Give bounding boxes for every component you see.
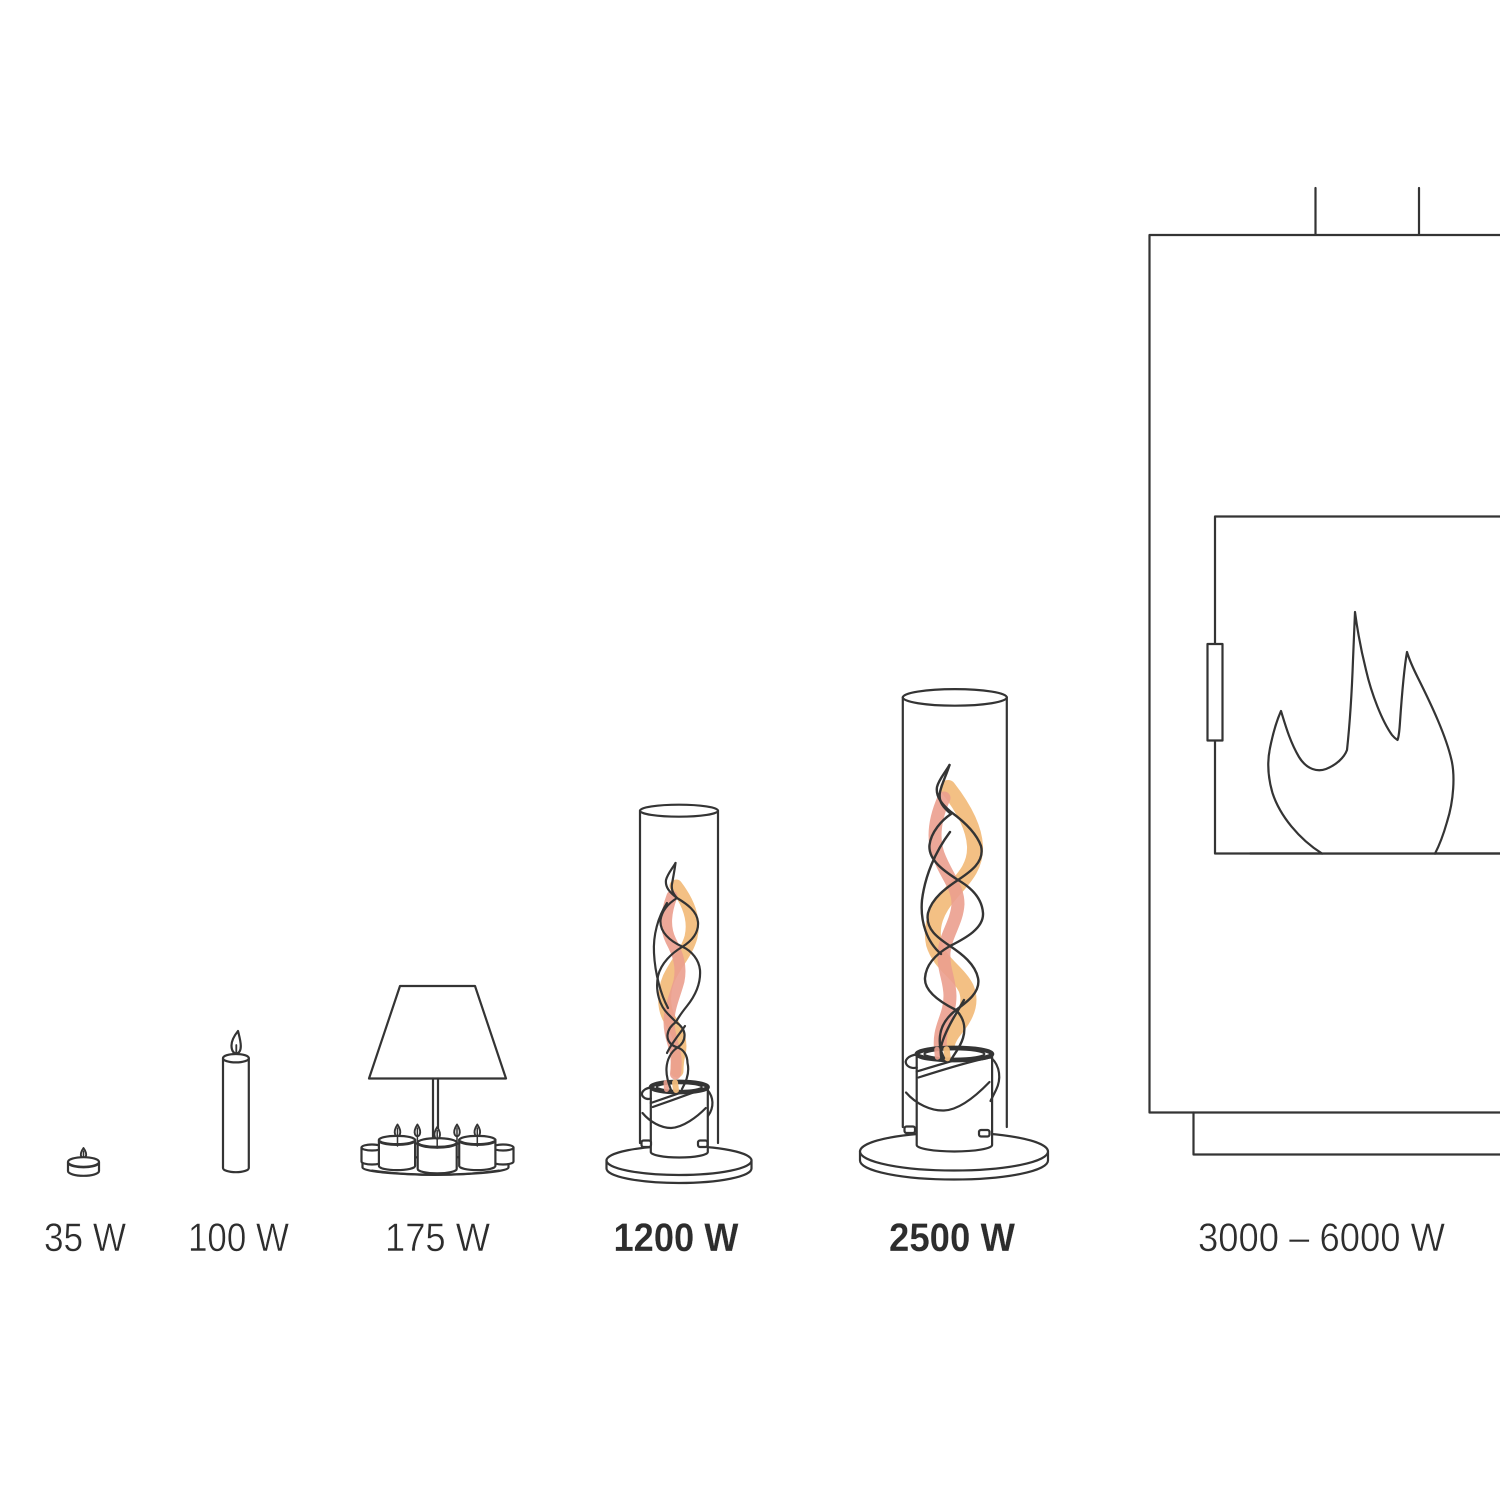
svg-text:2500 W: 2500 W (889, 1216, 1015, 1260)
svg-text:175 W: 175 W (385, 1216, 490, 1260)
svg-text:100 W: 100 W (188, 1216, 289, 1260)
svg-text:3000 – 6000 W: 3000 – 6000 W (1198, 1216, 1445, 1260)
svg-text:35 W: 35 W (44, 1216, 126, 1260)
svg-text:1200 W: 1200 W (614, 1216, 739, 1260)
